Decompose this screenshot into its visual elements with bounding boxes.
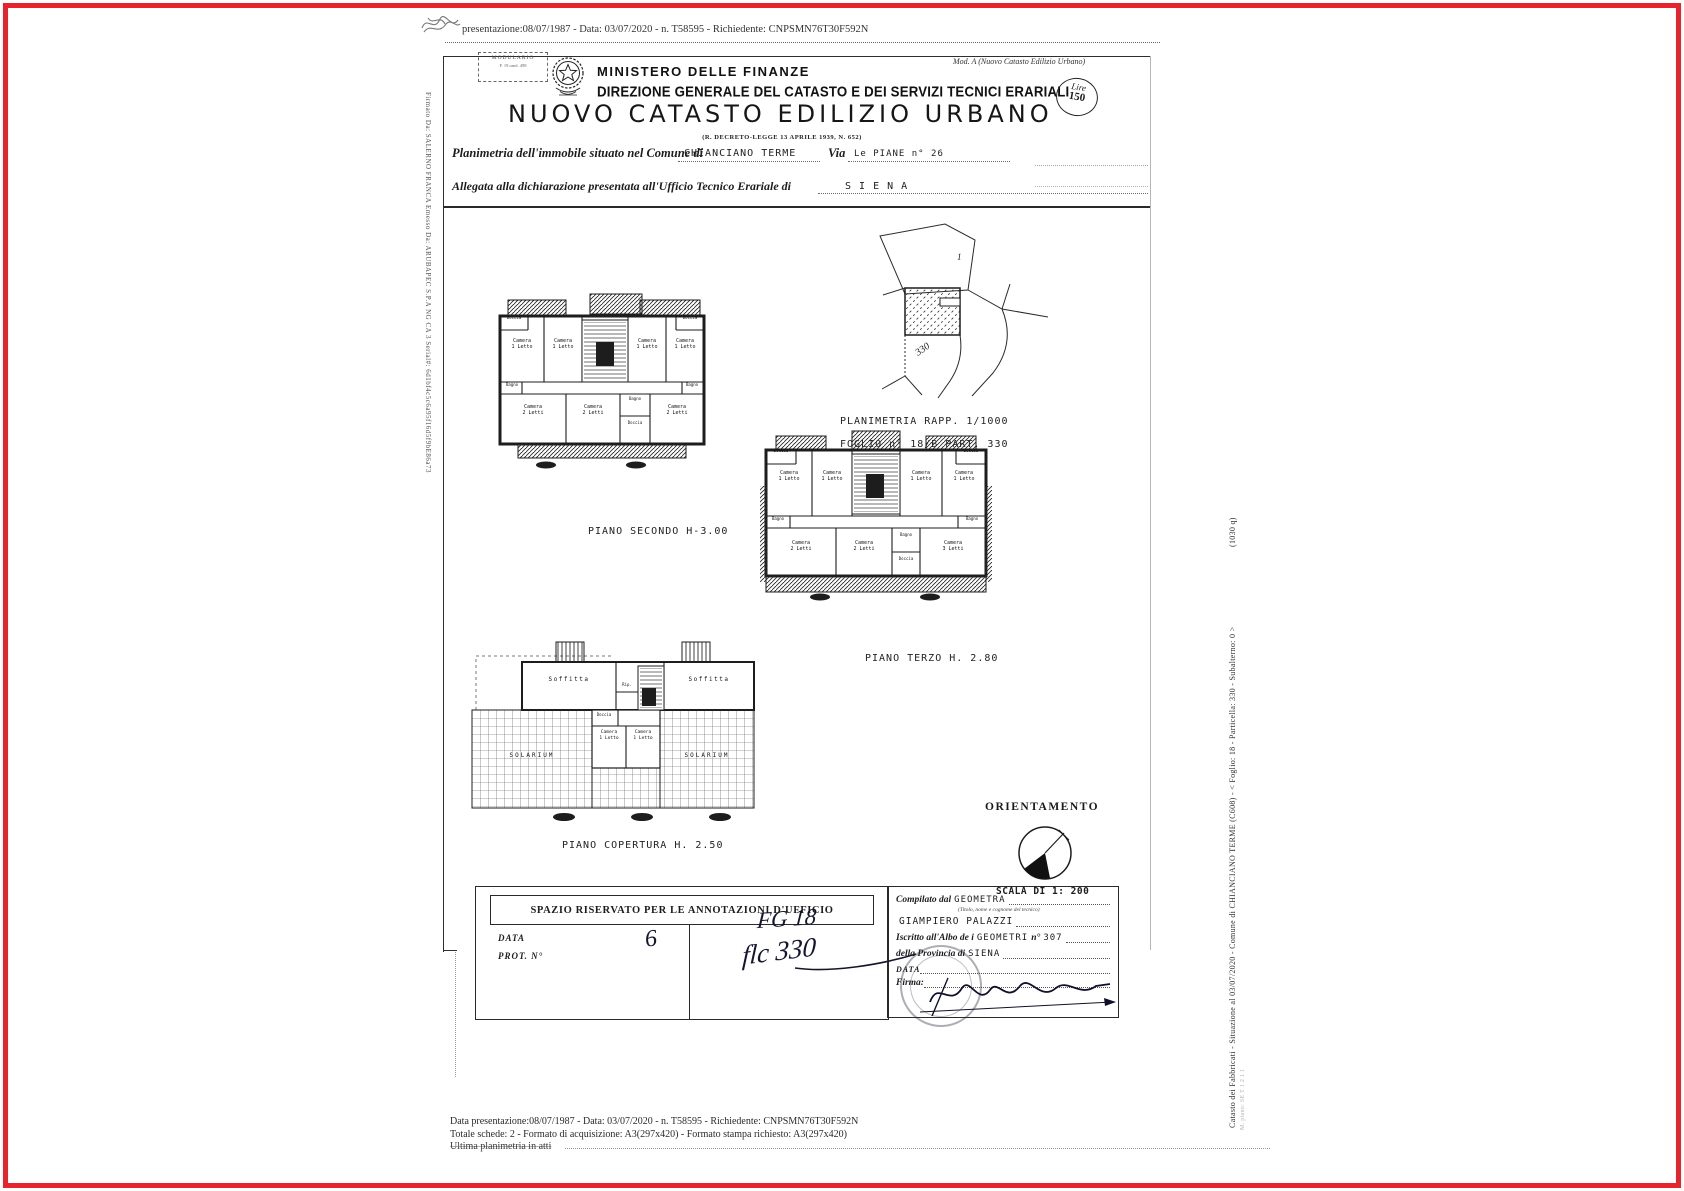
room-label: Bagno	[772, 516, 784, 521]
parcel-number-330: 330	[913, 341, 932, 359]
subject-parcel-hatched	[905, 288, 960, 335]
room-label: Bagno	[686, 382, 698, 387]
room-label: Doccia	[683, 315, 697, 320]
ministry-title: MINISTERO DELLE FINANZE	[597, 64, 810, 79]
room-label: Camera 1 Letto	[552, 338, 573, 351]
handwritten-fg18: FG 18	[756, 904, 817, 934]
caption-piano-secondo: PIANO SECONDO H-3.00	[588, 526, 728, 537]
footer-line3: Ultima planimetria in atti	[450, 1141, 551, 1152]
ufficio-underline-extra	[1035, 186, 1148, 187]
room-label: Camera 1 Letto	[674, 338, 695, 351]
cadastre-sidebar-secondary: M. piano: SE T 1 2 1 1	[1240, 1040, 1246, 1130]
modulario-box: MODULARIO F. 19 rand. 498	[478, 52, 548, 82]
room-label: SOLARIUM	[685, 752, 730, 760]
compilato-label: Compilato dal	[896, 895, 951, 905]
footer-line2: Totale schede: 2 - Formato di acquisizio…	[450, 1129, 847, 1140]
caption-piano-copertura: PIANO COPERTURA H. 2.50	[562, 840, 723, 851]
via-label: Via	[828, 146, 845, 161]
doc-frame-dotted-tail	[455, 952, 456, 1077]
room-label: Doccia	[774, 448, 788, 453]
via-value: Le PIANE n° 26	[854, 149, 944, 159]
footer-line1: Data presentazione:08/07/1987 - Data: 03…	[450, 1116, 858, 1127]
parcel-label-1: 1	[957, 252, 962, 262]
room-label: Camera 1 Letto	[633, 730, 652, 741]
room-label: Camera 2 Letti	[853, 540, 874, 553]
via-underline-extra	[1035, 165, 1148, 166]
room-label: Camera 1 Letto	[778, 470, 799, 483]
compass-icon	[1012, 820, 1078, 886]
doc-frame-left	[443, 56, 444, 952]
room-label: Bagno	[900, 532, 912, 537]
room-label: Camera 1 Letto	[599, 730, 618, 741]
room-label: Bagno	[506, 382, 518, 387]
cadastre-sidebar-extra: (1030 q)	[1228, 497, 1237, 547]
room-label: Rip.	[622, 682, 632, 687]
room-label: Doccia	[899, 556, 913, 561]
room-label: Camera 1 Letto	[953, 470, 974, 483]
document-title: NUOVO CATASTO EDILIZIO URBANO	[508, 100, 1053, 128]
room-label: Soffitta	[549, 676, 590, 684]
ministry-direction: DIREZIONE GENERALE DEL CATASTO E DEI SER…	[597, 83, 1069, 100]
albo-value: GEOMETRI	[974, 933, 1031, 943]
doc-frame-right	[1150, 56, 1151, 950]
comune-underline	[678, 161, 820, 162]
albo-n-value: 307	[1040, 933, 1065, 943]
modulario-line2: F. 19 rand. 498	[482, 63, 544, 68]
room-label: Camera 1 Letto	[511, 338, 532, 351]
comune-value: CHIANCIANO TERME	[684, 148, 796, 159]
office-box-divider	[689, 925, 690, 1019]
room-label: Camera 1 Letto	[636, 338, 657, 351]
site-map-sketch: 1 330	[850, 218, 1050, 413]
prot-label: PROT. N°	[498, 951, 543, 961]
state-emblem-icon	[549, 56, 587, 100]
room-label: Soffitta	[689, 676, 730, 684]
document-law-subtitle: (R. DECRETO-LEGGE 13 APRILE 1939, N. 652…	[642, 134, 922, 141]
stamp-scribble-icon	[418, 10, 462, 38]
meta-dotted-rule	[445, 42, 1160, 43]
digital-signature-sidebar: Firmato Da: SALERNO FRANCA Emesso Da: AR…	[424, 92, 432, 662]
data-label: DATA	[498, 933, 525, 943]
via-underline	[848, 161, 1010, 162]
orientation-label: ORIENTAMENTO	[985, 801, 1099, 813]
comune-label: Planimetria dell'immobile situato nel Co…	[452, 146, 703, 161]
room-label: Camera 1 Letto	[910, 470, 931, 483]
room-label: Camera 2 Letti	[666, 404, 687, 417]
room-label: Bagno	[629, 396, 641, 401]
ufficio-underline	[818, 193, 1148, 194]
ufficio-label: Allegata alla dichiarazione presentata a…	[452, 179, 791, 194]
ufficio-value: S I E N A	[845, 181, 908, 192]
room-label: SOLARIUM	[510, 752, 555, 760]
header-divider	[443, 206, 1150, 208]
cadastre-sidebar-main: Catasto dei Fabbricati - Situazione al 0…	[1228, 560, 1237, 1128]
room-label: Doccia	[964, 448, 978, 453]
room-label: Camera 2 Letti	[582, 404, 603, 417]
albo-label: Iscritto all'Albo de i	[896, 933, 974, 943]
footer-dotted-rule	[565, 1148, 1270, 1149]
signature	[918, 972, 1122, 1018]
compilato-value: GEOMETRA	[951, 895, 1008, 905]
floor-plan-piano-terzo	[760, 426, 992, 602]
albo-n-label: n°	[1031, 933, 1040, 943]
presentation-meta-line: presentazione:08/07/1987 - Data: 03/07/2…	[462, 24, 868, 35]
room-label: Doccia	[628, 420, 642, 425]
scanned-cadastral-document: presentazione:08/07/1987 - Data: 03/07/2…	[0, 0, 1684, 1191]
doc-frame-step	[443, 950, 457, 951]
room-label: Camera 2 Letti	[522, 404, 543, 417]
mod-a-label: Mod. A (Nuovo Catasto Edilizio Urbano)	[953, 57, 1085, 66]
room-label: Doccia	[507, 315, 521, 320]
caption-piano-terzo: PIANO TERZO H. 2.80	[865, 653, 998, 664]
floor-plan-piano-secondo	[494, 288, 710, 474]
floor-plan-piano-copertura	[464, 598, 762, 838]
room-label: Camera 1 Letto	[821, 470, 842, 483]
modulario-line1: MODULARIO	[482, 55, 544, 61]
room-label: Bagno	[966, 516, 978, 521]
room-label: Camera 3 Letti	[942, 540, 963, 553]
compiler-name: GIAMPIERO PALAZZI	[896, 916, 1016, 927]
room-label: Doccia	[597, 712, 611, 717]
compilato-sub: (Titolo, nome e cognome del tecnico)	[958, 907, 1118, 913]
room-label: Camera 2 Letti	[790, 540, 811, 553]
